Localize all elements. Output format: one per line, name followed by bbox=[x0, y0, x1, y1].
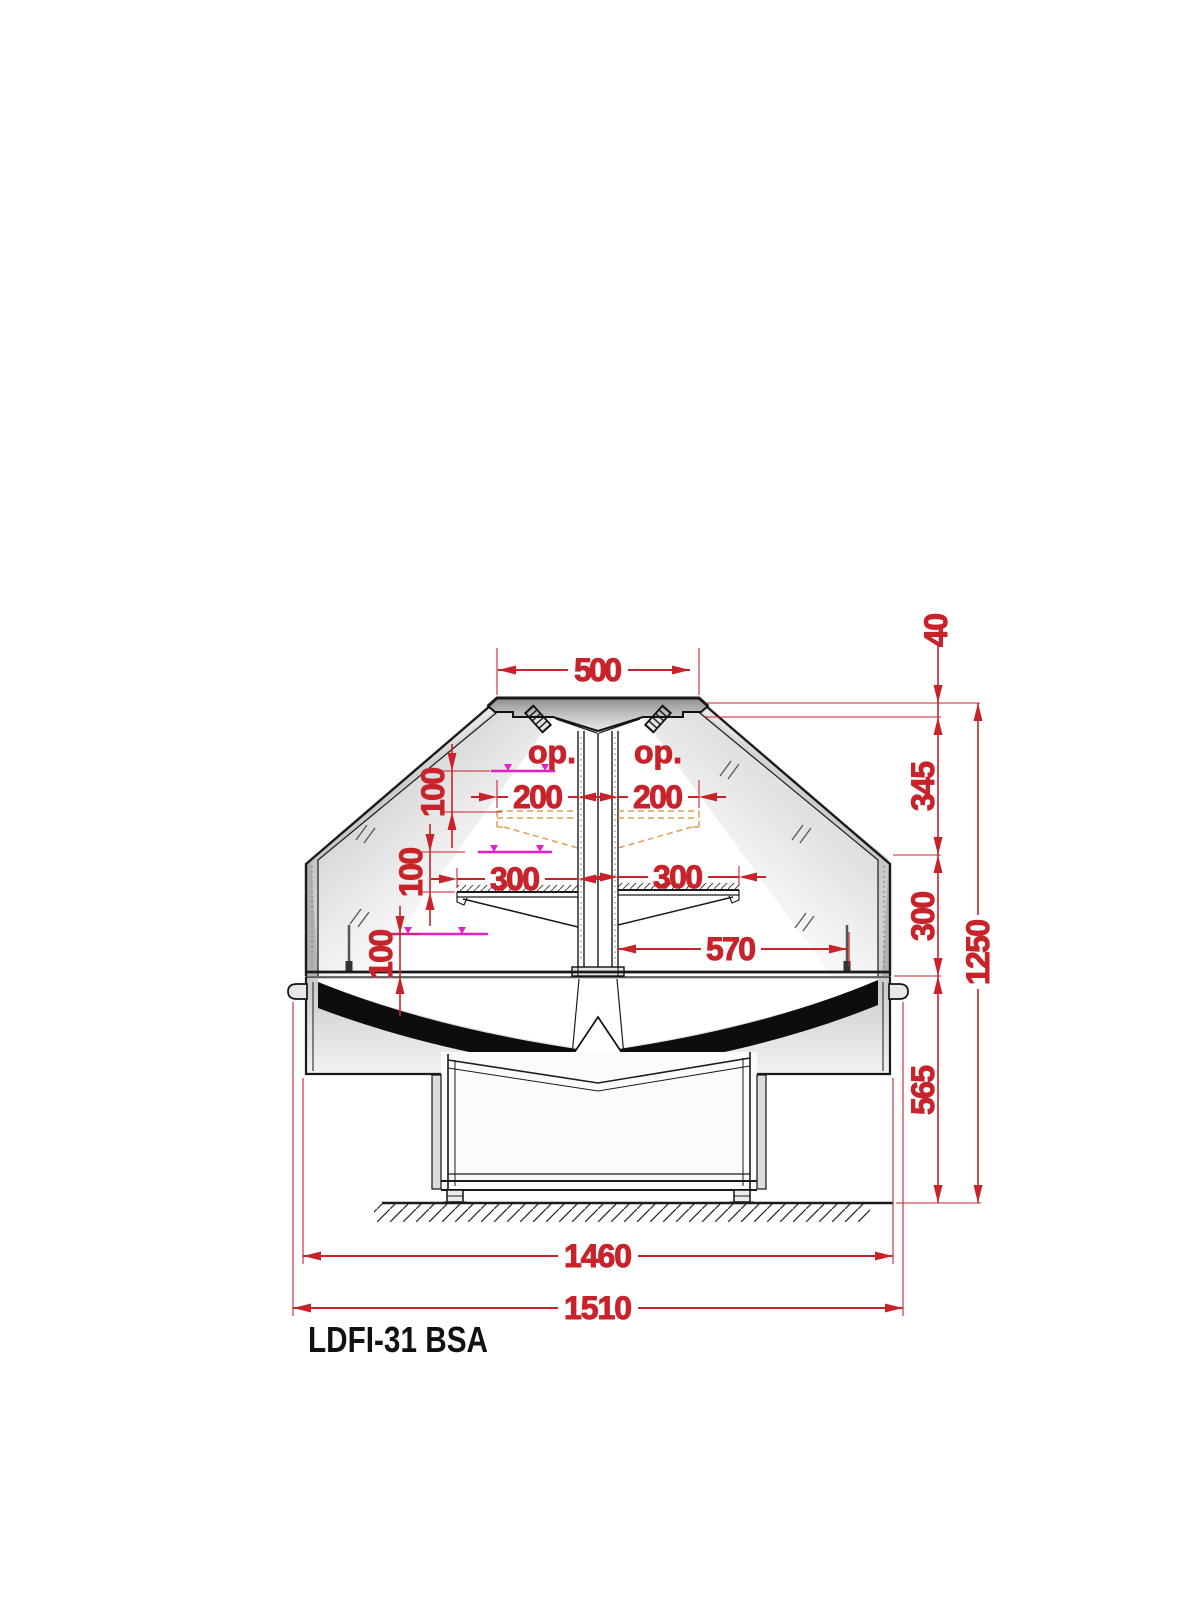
right-foot bbox=[730, 1190, 754, 1202]
technical-drawing: 500 40 345 300 565 1250 op. op. bbox=[0, 0, 1199, 1600]
dim-height-chain: 40 345 300 565 bbox=[905, 613, 954, 1203]
dim-shelf-right: 300 bbox=[591, 859, 766, 895]
dim-label-300-right: 300 bbox=[653, 859, 703, 895]
dim-label-565: 565 bbox=[905, 1065, 941, 1115]
optional-shelf-left bbox=[497, 811, 578, 848]
dim-label-40: 40 bbox=[918, 613, 954, 647]
dim-label-500: 500 bbox=[574, 652, 622, 688]
dim-label-200-right: 200 bbox=[633, 779, 683, 815]
left-bumper bbox=[288, 984, 307, 999]
dim-label-300-height: 300 bbox=[905, 891, 941, 941]
model-title: LDFI-31 BSA bbox=[308, 1319, 488, 1360]
dim-label-570: 570 bbox=[706, 931, 756, 967]
right-bumper bbox=[889, 984, 908, 999]
dim-label-300-left: 300 bbox=[490, 861, 540, 897]
dim-top-width: 500 bbox=[497, 648, 699, 695]
plinth bbox=[432, 1052, 766, 1190]
dim-label-1460: 1460 bbox=[564, 1238, 632, 1274]
floor-hatching bbox=[374, 1204, 870, 1222]
left-foot bbox=[443, 1190, 467, 1202]
dim-label-1250: 1250 bbox=[960, 919, 996, 985]
drawing-page: 500 40 345 300 565 1250 op. op. bbox=[0, 0, 1199, 1600]
optional-shelf-right bbox=[618, 811, 699, 848]
dim-label-345: 345 bbox=[905, 761, 941, 811]
dim-label-1510: 1510 bbox=[564, 1290, 632, 1326]
dim-label-100-upper: 100 bbox=[415, 767, 451, 817]
center-divider-column bbox=[572, 731, 624, 976]
dim-label-200-left: 200 bbox=[513, 779, 563, 815]
dim-label-100-middle: 100 bbox=[393, 847, 429, 897]
label-optional-right: op. bbox=[634, 734, 682, 770]
label-optional-left: op. bbox=[528, 734, 576, 770]
dim-total-height: 1250 bbox=[960, 703, 996, 1203]
dim-label-100-lower: 100 bbox=[363, 929, 399, 979]
